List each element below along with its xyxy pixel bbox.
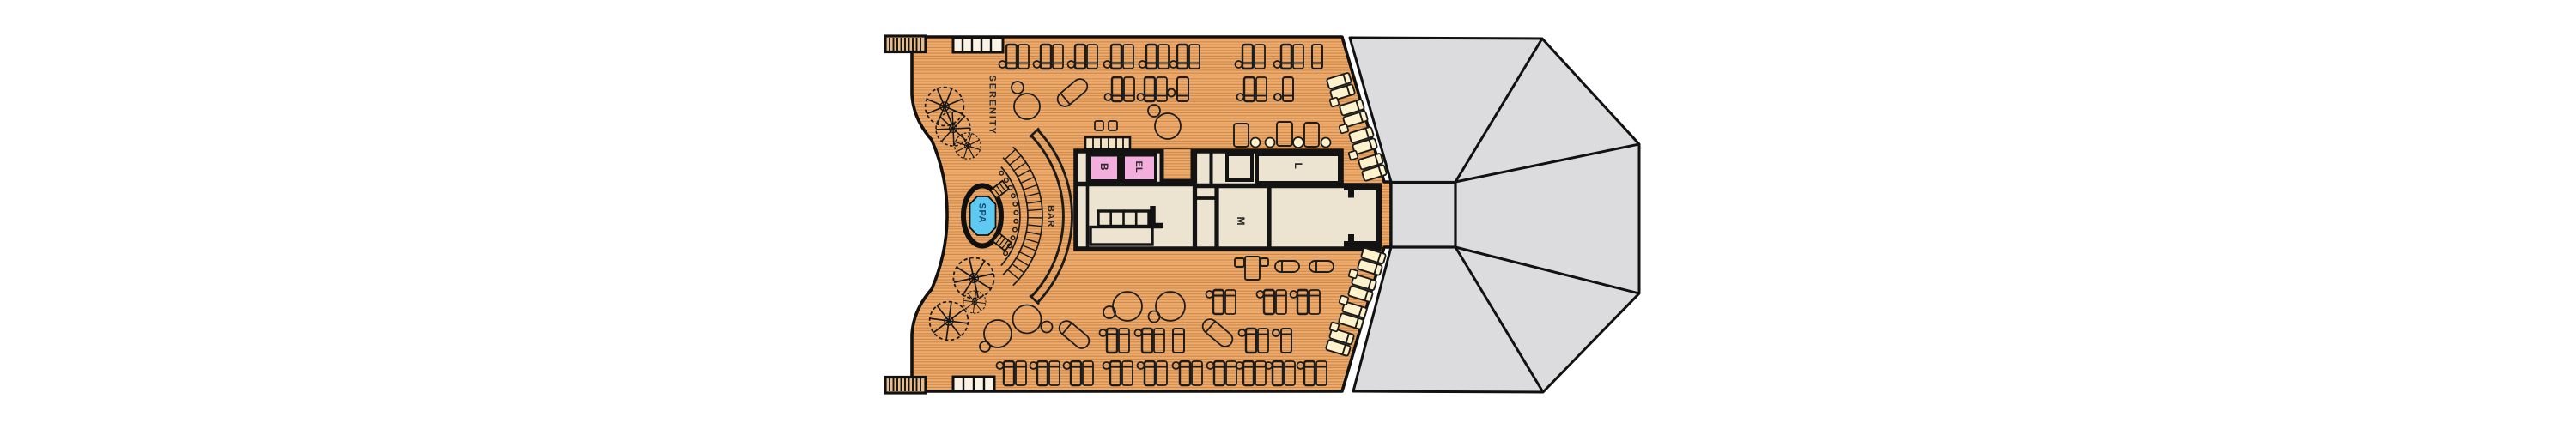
svg-text:L: L — [1292, 163, 1304, 169]
svg-text:BAR: BAR — [1046, 205, 1056, 227]
svg-text:M: M — [1235, 217, 1247, 226]
svg-text:B: B — [1098, 163, 1110, 171]
svg-text:SPA: SPA — [977, 203, 987, 224]
svg-text:EL: EL — [1133, 161, 1144, 173]
svg-text:SERENITY: SERENITY — [987, 76, 998, 136]
